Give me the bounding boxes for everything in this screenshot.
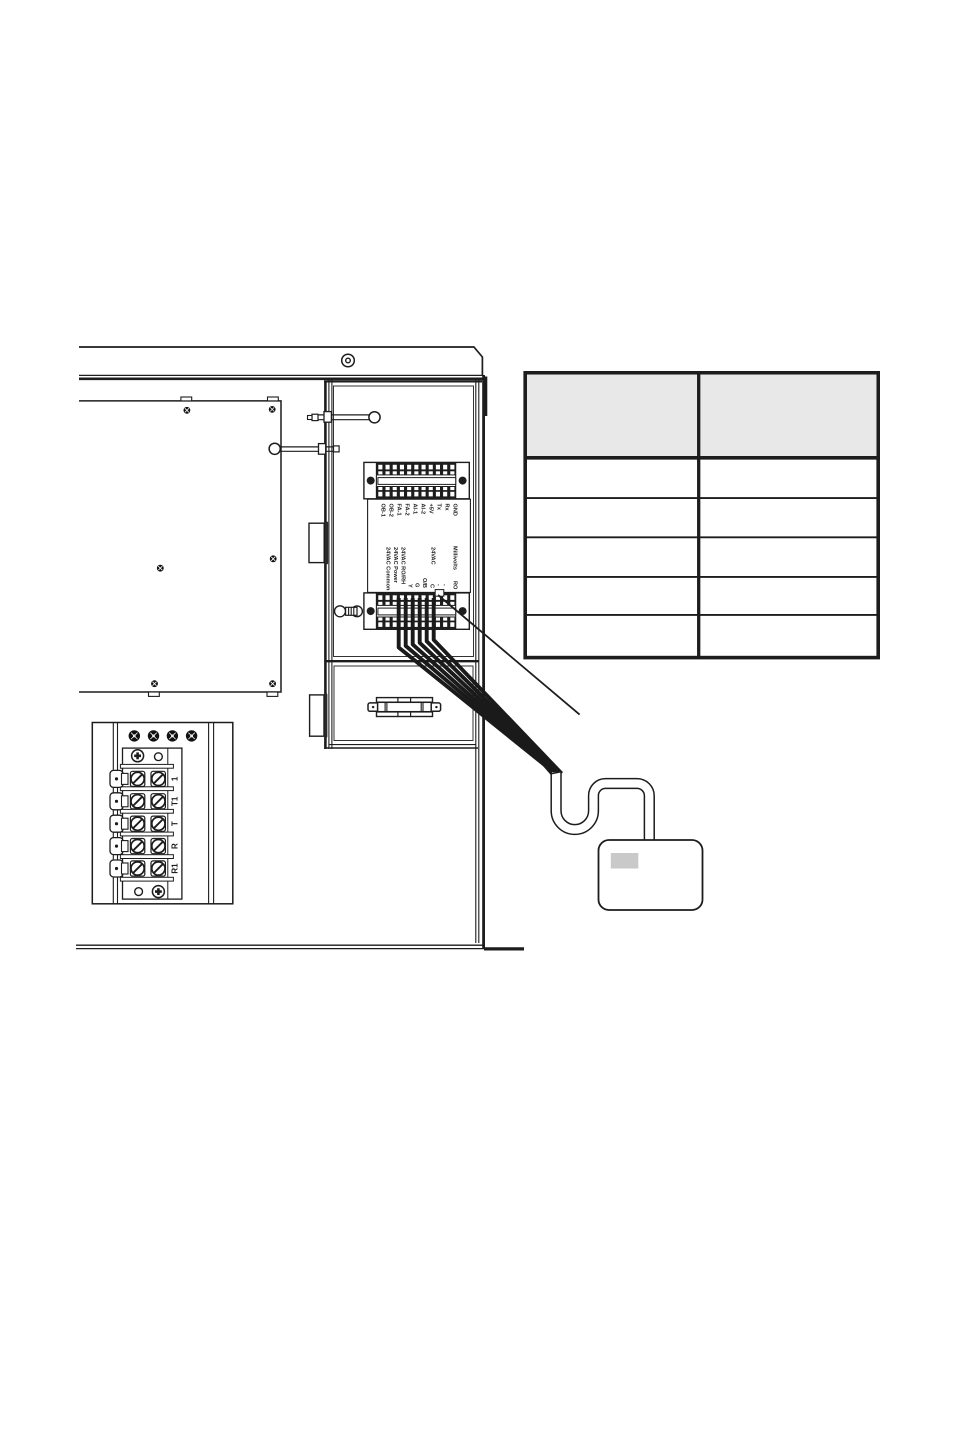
svg-text:24VAC Common: 24VAC Common <box>385 547 391 591</box>
svg-text:Rx: Rx <box>444 504 450 512</box>
svg-text:GND: GND <box>452 504 458 516</box>
svg-text:24VAC: 24VAC <box>430 547 436 565</box>
svg-text:T1: T1 <box>170 796 179 806</box>
svg-text:T: T <box>170 821 179 826</box>
svg-text:R1: R1 <box>170 863 179 874</box>
svg-text:24VAC RO/RH: 24VAC RO/RH <box>400 547 406 584</box>
svg-text:Millivolts: Millivolts <box>452 546 458 570</box>
svg-text:+5V: +5V <box>428 504 434 514</box>
svg-text:R: R <box>170 843 179 849</box>
svg-text:O/B: O/B <box>421 578 427 588</box>
svg-text:FA-1: FA-1 <box>396 504 402 516</box>
svg-text:Tx: Tx <box>436 504 442 511</box>
svg-text:AI-1: AI-1 <box>412 504 418 515</box>
svg-text:OB-2: OB-2 <box>388 504 394 517</box>
svg-text:AI-2: AI-2 <box>420 504 426 515</box>
svg-text:C: C <box>429 584 435 588</box>
svg-text:1: 1 <box>170 776 179 781</box>
svg-text:24VAC Power: 24VAC Power <box>392 547 398 584</box>
svg-text:Y: Y <box>407 584 413 588</box>
svg-text:-: - <box>441 584 447 586</box>
svg-text:-: - <box>435 584 441 586</box>
svg-text:G: G <box>414 583 420 587</box>
svg-text:RO: RO <box>452 581 458 590</box>
svg-text:FA-2: FA-2 <box>404 504 410 516</box>
svg-text:OB-1: OB-1 <box>380 504 386 517</box>
